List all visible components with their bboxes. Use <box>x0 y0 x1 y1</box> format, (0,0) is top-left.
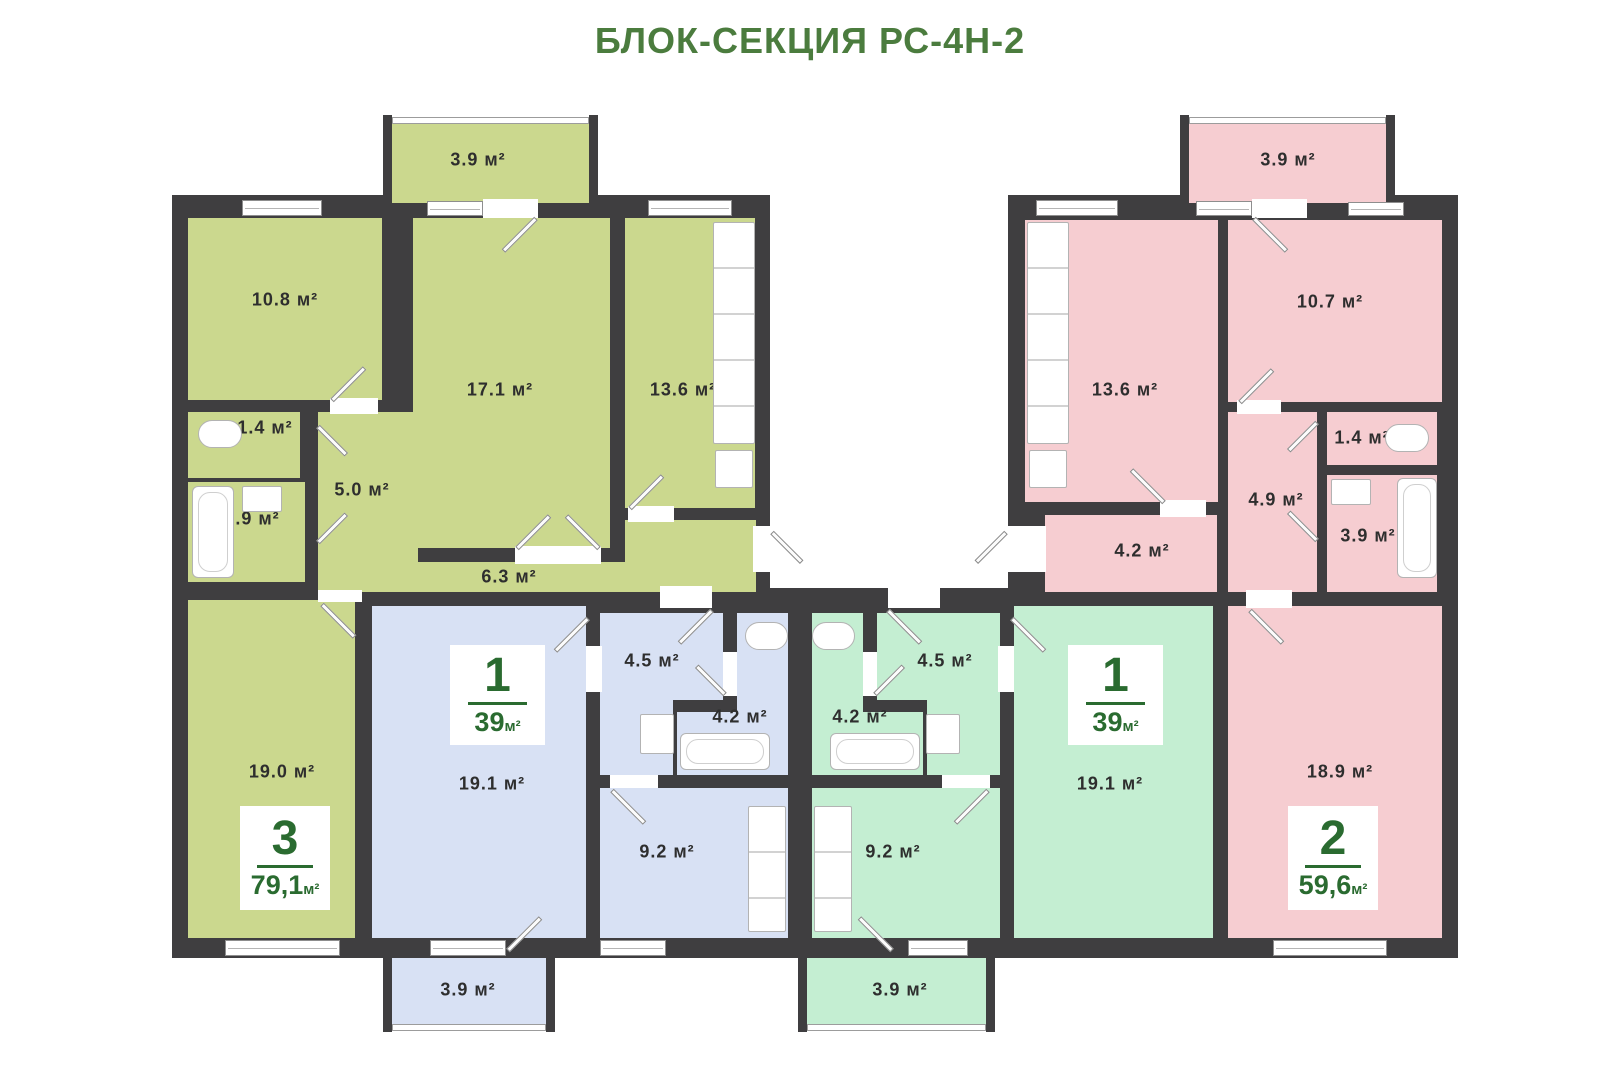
apartment-badge-blue: 1 39м² <box>450 645 545 745</box>
label-balcony-mint: 3.9 м² <box>872 980 927 1001</box>
badge-unit-blue: м² <box>504 718 520 735</box>
label-living-olive: 17.1 м² <box>467 380 533 401</box>
window <box>1348 202 1404 216</box>
balcony-wall <box>589 115 598 203</box>
label-bath-blue: 4.2 м² <box>712 707 767 728</box>
label-wc-pink: 1.4 м² <box>1334 428 1389 449</box>
label-bath-pink: 3.9 м² <box>1340 526 1395 547</box>
bathtub-icon <box>830 733 920 770</box>
door-opening <box>1160 500 1206 517</box>
badge-area-olive: 79,1 <box>251 870 304 900</box>
badge-unit-pink: м² <box>1351 881 1367 898</box>
badge-rule <box>468 702 527 705</box>
window <box>225 940 340 956</box>
window <box>242 200 322 216</box>
badge-area-pink: 59,6 <box>1299 870 1352 900</box>
badge-rooms-mint: 1 <box>1102 654 1129 697</box>
label-balcony-blue: 3.9 м² <box>440 980 495 1001</box>
window <box>648 200 732 216</box>
door-opening <box>628 506 674 522</box>
door-opening <box>515 546 601 564</box>
balcony-wall <box>383 950 392 1032</box>
balcony-wall <box>986 950 995 1032</box>
door-opening <box>660 586 712 608</box>
door-opening <box>1246 590 1292 608</box>
door-opening <box>753 526 772 572</box>
stairwell <box>772 430 1008 588</box>
door-opening <box>610 775 658 788</box>
floor-plan: БЛОК-СЕКЦИЯ РС-4Н-2 3.9 м² 10.8 м² 17.1 … <box>0 0 1620 1080</box>
label-kitchen-pink: 13.6 м² <box>1092 380 1158 401</box>
badge-unit-olive: м² <box>303 881 319 898</box>
door-opening <box>586 646 602 692</box>
label-hall-olive: 5.0 м² <box>334 480 389 501</box>
window <box>908 940 968 956</box>
window <box>1036 200 1118 216</box>
sink-icon <box>1331 479 1371 505</box>
room-corridor-olive <box>625 520 756 592</box>
badge-unit-mint: м² <box>1122 718 1138 735</box>
badge-area-mint: 39 <box>1092 707 1122 737</box>
sink-icon <box>812 622 855 650</box>
label-bedroom2-olive: 19.0 м² <box>249 762 315 783</box>
toilet-icon <box>1385 424 1429 452</box>
kitchen-sink-icon <box>1029 450 1067 488</box>
label-bedroom1-olive: 10.8 м² <box>252 290 318 311</box>
balcony-wall <box>798 950 807 1032</box>
label-wc-olive: 1.4 м² <box>237 418 292 439</box>
vanity-icon <box>926 714 960 754</box>
door-opening <box>723 652 737 696</box>
badge-rooms-olive: 3 <box>272 817 299 860</box>
balcony-railing <box>1189 117 1386 124</box>
kitchen-counter-icon <box>713 222 755 444</box>
kitchen-counter-icon <box>1027 222 1069 444</box>
bathtub-icon <box>1397 478 1437 578</box>
door-opening <box>998 646 1014 692</box>
label-living-blue: 19.1 м² <box>459 774 525 795</box>
door-opening <box>888 586 940 608</box>
vanity-icon <box>640 714 674 754</box>
badge-rooms-blue: 1 <box>484 654 511 697</box>
badge-area-blue: 39 <box>474 707 504 737</box>
kitchen-counter-icon <box>814 806 852 932</box>
label-corridor-olive: 6.3 м² <box>481 567 536 588</box>
room-corridor-olive <box>318 562 640 592</box>
sink-icon <box>745 622 788 650</box>
balcony-wall <box>546 950 555 1032</box>
window <box>1196 201 1252 216</box>
label-corridor-pink: 4.2 м² <box>1114 541 1169 562</box>
bathtub-icon <box>192 486 234 578</box>
badge-rooms-pink: 2 <box>1320 817 1347 860</box>
badge-rule <box>1086 702 1145 705</box>
door-opening <box>318 590 362 602</box>
label-hall-blue: 4.5 м² <box>624 651 679 672</box>
window <box>427 201 483 216</box>
door-opening <box>483 199 538 218</box>
page-title: БЛОК-СЕКЦИЯ РС-4Н-2 <box>0 20 1620 62</box>
label-living-mint: 19.1 м² <box>1077 774 1143 795</box>
door-opening <box>330 398 378 414</box>
label-balcony-pink: 3.9 м² <box>1260 150 1315 171</box>
balcony-railing <box>392 117 589 124</box>
balcony-wall <box>1386 115 1395 203</box>
label-bedroom-pink: 10.7 м² <box>1297 292 1363 313</box>
balcony-wall <box>1180 115 1189 203</box>
window <box>430 940 506 956</box>
kitchen-counter-icon <box>748 806 786 932</box>
door-opening <box>1006 526 1046 572</box>
label-living-pink: 18.9 м² <box>1307 762 1373 783</box>
label-bath-mint: 4.2 м² <box>832 707 887 728</box>
window <box>1273 940 1387 956</box>
balcony-wall <box>383 115 392 203</box>
label-kitchen-blue: 9.2 м² <box>639 842 694 863</box>
label-hall-pink: 4.9 м² <box>1248 490 1303 511</box>
badge-rule <box>1305 865 1361 868</box>
door-opening <box>942 775 990 788</box>
door-opening <box>1252 199 1307 218</box>
label-hall-mint: 4.5 м² <box>917 651 972 672</box>
label-kitchen-mint: 9.2 м² <box>865 842 920 863</box>
balcony-railing <box>807 1024 986 1031</box>
badge-rule <box>257 865 313 868</box>
apartment-badge-pink: 2 59,6м² <box>1288 806 1378 910</box>
kitchen-sink-icon <box>715 450 753 488</box>
apartment-badge-mint: 1 39м² <box>1068 645 1163 745</box>
apartment-badge-olive: 3 79,1м² <box>240 806 330 910</box>
label-kitchen-olive: 13.6 м² <box>650 380 716 401</box>
toilet-icon <box>198 420 242 448</box>
label-balcony-olive: 3.9 м² <box>450 150 505 171</box>
balcony-railing <box>392 1024 546 1031</box>
sink-icon <box>242 486 282 512</box>
bathtub-icon <box>680 733 770 770</box>
window <box>600 940 666 956</box>
